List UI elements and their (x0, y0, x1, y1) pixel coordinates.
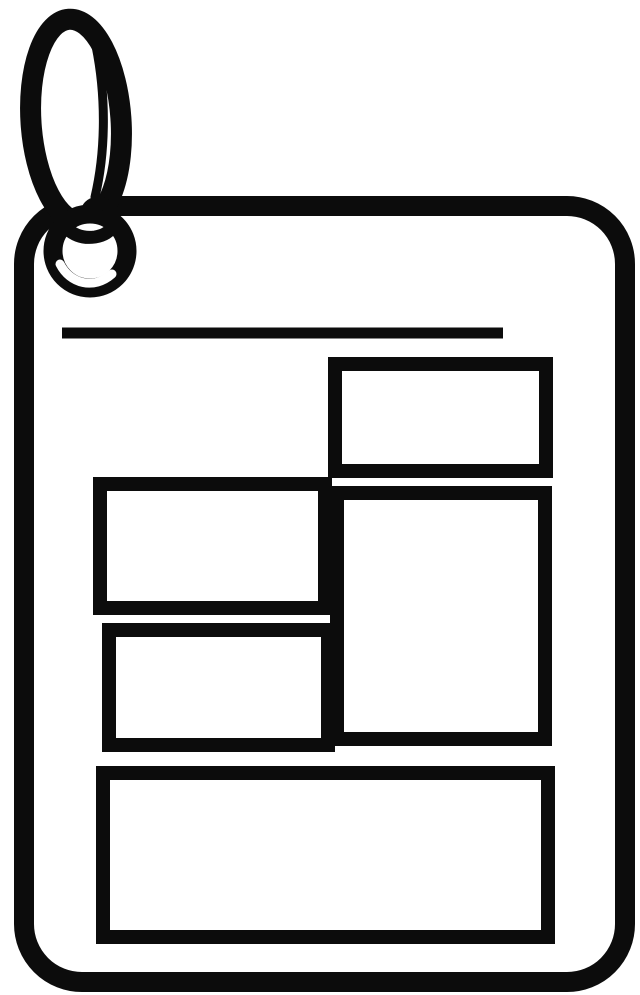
icon-canvas (0, 0, 640, 995)
keyring-oval (24, 16, 128, 226)
keyring-tag-icon (0, 0, 640, 995)
